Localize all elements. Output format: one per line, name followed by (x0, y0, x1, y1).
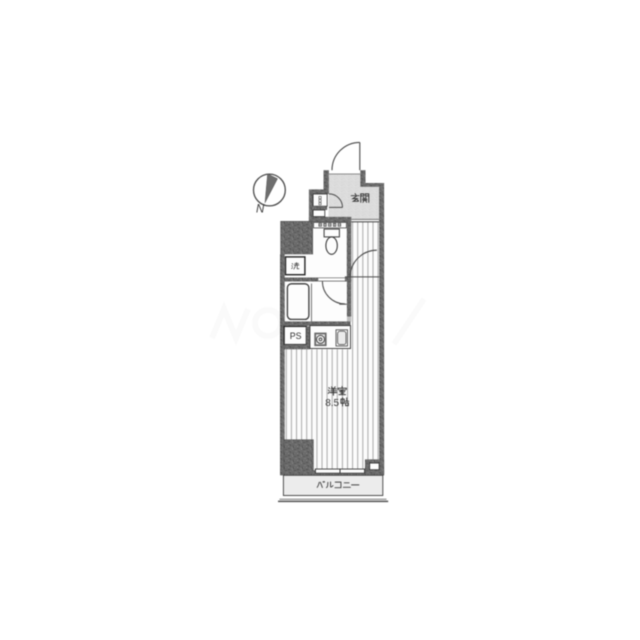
svg-text:8.5: 8.5 (325, 398, 339, 409)
svg-text:PS: PS (290, 331, 302, 341)
svg-text:N: N (256, 204, 265, 216)
